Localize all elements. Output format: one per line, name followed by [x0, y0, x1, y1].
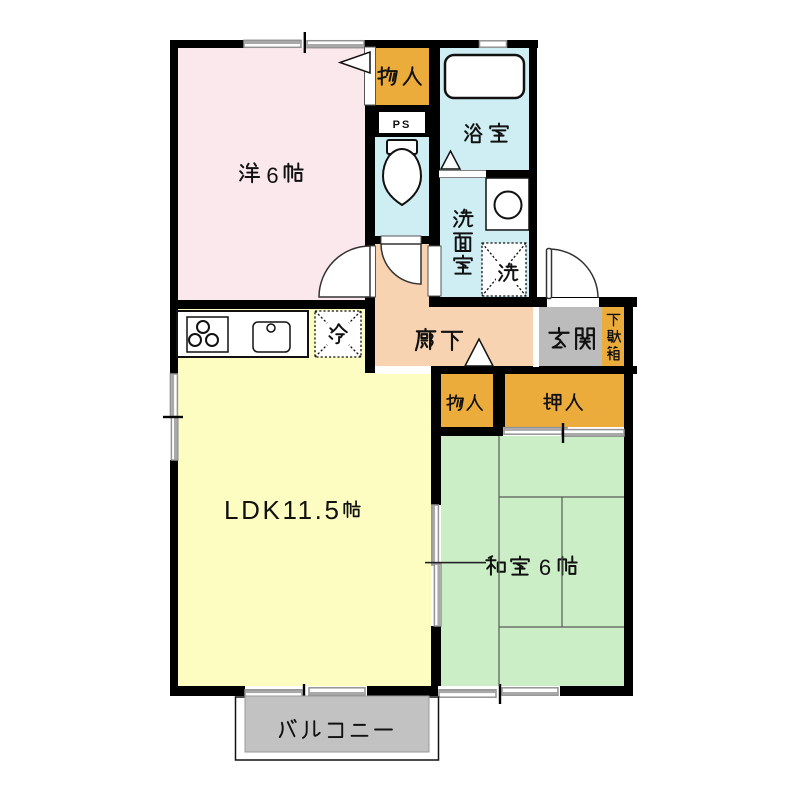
svg-text:LDK11.5: LDK11.5 [224, 495, 339, 525]
svg-text:PS: PS [393, 119, 412, 131]
svg-text:6: 6 [539, 555, 551, 580]
svg-text:6: 6 [266, 163, 278, 188]
